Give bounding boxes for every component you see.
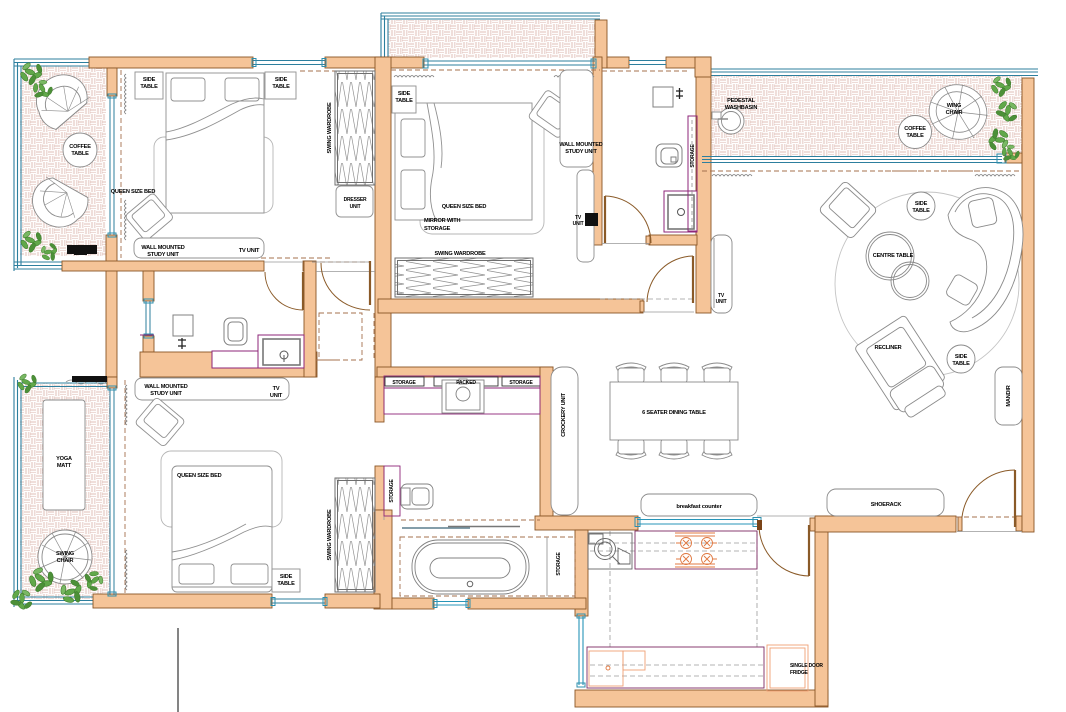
svg-text:SIDE: SIDE: [398, 91, 411, 97]
svg-text:RECLINER: RECLINER: [875, 345, 902, 351]
svg-text:COFFEE: COFFEE: [69, 144, 91, 150]
svg-text:STORAGE: STORAGE: [509, 380, 533, 386]
svg-text:SWING: SWING: [56, 551, 74, 557]
svg-text:QUEEN SIZE BED: QUEEN SIZE BED: [177, 473, 222, 479]
svg-text:COFFEE: COFFEE: [904, 126, 926, 132]
svg-text:TABLE: TABLE: [272, 84, 290, 90]
svg-text:FRIDGE: FRIDGE: [790, 670, 809, 676]
svg-text:TABLE: TABLE: [395, 98, 413, 104]
svg-text:CHAIR: CHAIR: [946, 110, 963, 116]
svg-text:SHOERACK: SHOERACK: [871, 502, 902, 508]
svg-text:TABLE: TABLE: [71, 151, 89, 157]
svg-text:SWING WARDROBE: SWING WARDROBE: [327, 102, 333, 153]
svg-text:WALL MOUNTED: WALL MOUNTED: [559, 142, 602, 148]
svg-text:CENTRE TABLE: CENTRE TABLE: [873, 253, 914, 259]
svg-text:MATT: MATT: [57, 463, 72, 469]
svg-text:WASHBASIN: WASHBASIN: [725, 105, 758, 111]
svg-text:TV UNIT: TV UNIT: [239, 248, 260, 254]
svg-text:MANDIR: MANDIR: [1006, 385, 1012, 406]
svg-text:TV: TV: [273, 386, 280, 392]
svg-text:WALL MOUNTED: WALL MOUNTED: [144, 384, 187, 390]
svg-text:WALL MOUNTED: WALL MOUNTED: [141, 245, 184, 251]
svg-text:QUEEN SIZE BED: QUEEN SIZE BED: [442, 204, 487, 210]
svg-text:STUDY UNIT: STUDY UNIT: [565, 149, 597, 155]
svg-text:QUEEN SIZE BED: QUEEN SIZE BED: [111, 189, 156, 195]
svg-text:TABLE: TABLE: [140, 84, 158, 90]
svg-text:MIRROR WITH: MIRROR WITH: [424, 218, 460, 224]
svg-text:STUDY UNIT: STUDY UNIT: [147, 252, 179, 258]
svg-text:CHAIR: CHAIR: [57, 558, 74, 564]
svg-text:SWING WARDROBE: SWING WARDROBE: [435, 251, 486, 257]
svg-text:SINGLE DOOR: SINGLE DOOR: [790, 663, 823, 669]
svg-text:STUDY UNIT: STUDY UNIT: [150, 391, 182, 397]
svg-text:STORAGE: STORAGE: [556, 552, 562, 576]
svg-text:WING: WING: [947, 103, 961, 109]
svg-text:STORAGE: STORAGE: [392, 380, 416, 386]
svg-text:PACKED: PACKED: [456, 380, 476, 386]
svg-text:SIDE: SIDE: [275, 77, 288, 83]
svg-text:SIDE: SIDE: [280, 574, 293, 580]
svg-text:STORAGE: STORAGE: [389, 479, 395, 503]
svg-text:YOGA: YOGA: [56, 456, 72, 462]
svg-text:breakfast counter: breakfast counter: [676, 504, 722, 510]
svg-text:CROCKERY UNIT: CROCKERY UNIT: [561, 392, 567, 436]
svg-text:SIDE: SIDE: [915, 201, 928, 207]
svg-text:PEDESTAL: PEDESTAL: [727, 98, 756, 104]
svg-text:UNIT: UNIT: [270, 393, 283, 399]
svg-text:SIDE: SIDE: [143, 77, 156, 83]
svg-text:TABLE: TABLE: [912, 208, 930, 214]
svg-text:UNIT: UNIT: [573, 221, 584, 227]
svg-text:DRESSER: DRESSER: [344, 197, 367, 203]
svg-text:TABLE: TABLE: [906, 133, 924, 139]
svg-text:UNIT: UNIT: [350, 204, 361, 210]
svg-text:TABLE: TABLE: [952, 361, 970, 367]
svg-text:STORAGE: STORAGE: [690, 144, 696, 168]
svg-text:TABLE: TABLE: [277, 581, 295, 587]
svg-text:SIDE: SIDE: [955, 354, 968, 360]
svg-text:STORAGE: STORAGE: [424, 226, 451, 232]
svg-text:UNIT: UNIT: [716, 299, 727, 305]
svg-text:SWING WARDROBE: SWING WARDROBE: [327, 509, 333, 560]
svg-text:6 SEATER DINING TABLE: 6 SEATER DINING TABLE: [642, 410, 706, 416]
